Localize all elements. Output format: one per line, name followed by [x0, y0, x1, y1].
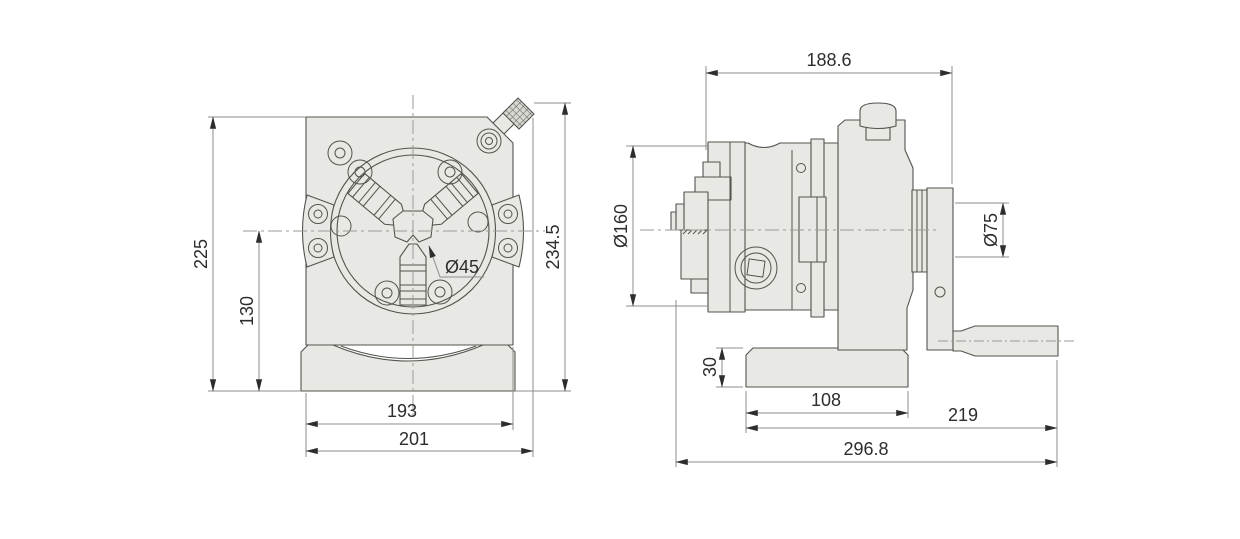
drawing-page: 225 130 234.5 Ø45 193 201 — [0, 0, 1240, 539]
jaw-step-lower2 — [691, 279, 708, 293]
side-view: 188.6 Ø160 Ø75 30 108 219 296.8 — [611, 50, 1074, 467]
jaw-step-b — [676, 204, 684, 230]
side-column — [838, 120, 913, 350]
dim-height-total: 234.5 — [543, 224, 563, 269]
crank-arm — [927, 188, 953, 350]
dim-width-body: 193 — [387, 401, 417, 421]
dim-flange-dia: Ø75 — [981, 213, 1001, 247]
side-base — [746, 348, 908, 387]
dim-base-height: 30 — [700, 357, 720, 377]
spindle-hub — [912, 190, 927, 272]
dim-width-base: 201 — [399, 429, 429, 449]
dim-height-center: 130 — [237, 296, 257, 326]
jaw-step-c — [671, 212, 676, 230]
jaw-step-a — [684, 192, 708, 230]
technical-drawing-canvas: 225 130 234.5 Ø45 193 201 — [0, 0, 1240, 539]
dim-length-mid: 219 — [948, 405, 978, 425]
dim-chuck-dia: Ø160 — [611, 204, 631, 248]
dim-base-length: 108 — [811, 390, 841, 410]
dim-height-overall: 225 — [191, 239, 211, 269]
plunger-knob-cap — [860, 103, 896, 129]
dim-length-overall: 296.8 — [843, 439, 888, 459]
jaw-step-stem — [703, 162, 720, 177]
dim-bore: Ø45 — [445, 257, 479, 277]
dim-length-top: 188.6 — [806, 50, 851, 70]
front-view: 225 130 234.5 Ø45 193 201 — [191, 95, 571, 457]
front-base — [301, 345, 515, 391]
jaw-step-lower — [681, 230, 708, 279]
